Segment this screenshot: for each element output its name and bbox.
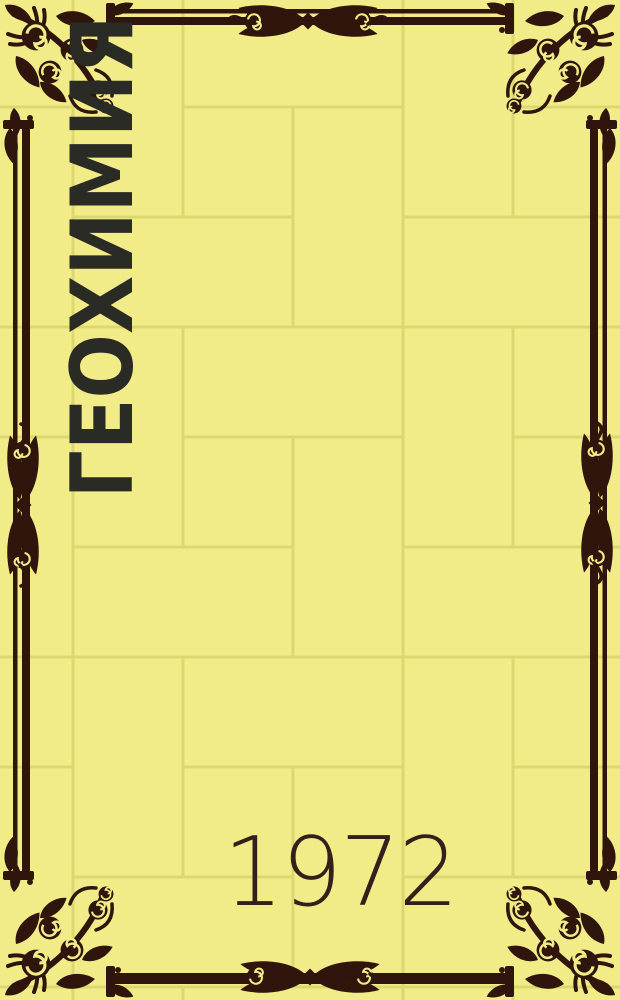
corner-ornament-top-right bbox=[485, 0, 619, 164]
year-label: 1972 bbox=[60, 826, 620, 921]
edge-ornament-right bbox=[581, 422, 613, 584]
edge-ornament-left bbox=[7, 424, 39, 586]
edge-ornament-bottom bbox=[229, 961, 391, 993]
journal-cover: ГЕОХИМИЯ 1972 bbox=[0, 0, 620, 1000]
journal-title: ГЕОХИМИЯ bbox=[57, 94, 149, 499]
